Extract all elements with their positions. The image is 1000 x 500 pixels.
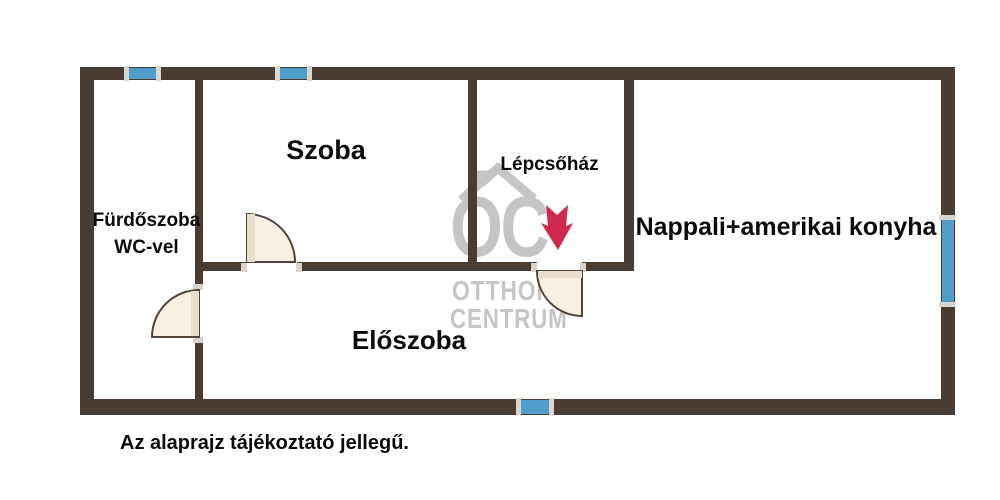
- wall-bathroom-lower: [195, 338, 203, 399]
- window-room-top: [275, 66, 312, 81]
- window-hallway-bottom: [516, 398, 554, 415]
- hinge-mark: [296, 263, 302, 272]
- window-cap: [124, 66, 129, 81]
- door-room-leaf: [247, 214, 255, 262]
- window-bathroom-top: [124, 66, 161, 81]
- room-label-nappali: Nappali+amerikai konyha: [627, 211, 945, 244]
- window-cap: [156, 66, 161, 81]
- door-staircase-leaf: [538, 271, 582, 278]
- wall-hallway-seg1: [195, 262, 247, 271]
- room-label-furdoszoba-line2: WC-vel: [76, 234, 217, 261]
- wall-hallway-seg3: [582, 262, 634, 271]
- window-cap: [307, 66, 312, 81]
- hinge-mark: [241, 263, 247, 272]
- room-label-eloszoba: Előszoba: [333, 324, 485, 358]
- window-glass: [280, 68, 307, 79]
- window-glass: [129, 68, 156, 79]
- wall-room-staircase: [468, 80, 477, 271]
- room-label-furdoszoba-line1: Fürdőszoba: [76, 207, 217, 234]
- window-cap: [275, 66, 280, 81]
- wall-hallway-seg2: [297, 262, 537, 271]
- room-label-lepcsohaz: Lépcsőház: [479, 153, 620, 178]
- down-arrow-icon: [541, 205, 573, 250]
- door-bathroom-leaf: [191, 291, 199, 336]
- window-cap: [549, 398, 554, 415]
- wall-top: [80, 67, 955, 80]
- window-cap: [939, 302, 956, 307]
- room-label-szoba: Szoba: [250, 133, 402, 168]
- window-glass: [521, 400, 549, 414]
- room-label-furdoszoba: Fürdőszoba WC-vel: [76, 207, 217, 261]
- window-cap: [516, 398, 521, 415]
- floorplan-page: OC OTTHON CENTRUM: [0, 0, 1000, 500]
